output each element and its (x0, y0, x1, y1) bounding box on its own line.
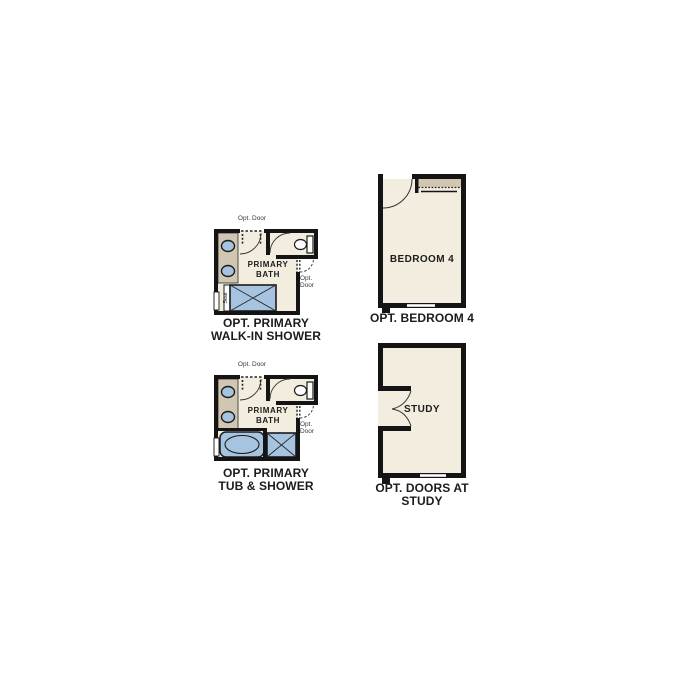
wall-niche (214, 438, 219, 456)
room-label-line2: BATH (256, 270, 280, 279)
bedroom-4-room-label: BEDROOM 4 (382, 254, 462, 265)
sink-basin (222, 266, 235, 277)
caption-bedroom-4: OPT. BEDROOM 4 (350, 312, 494, 325)
optional-door-swing-arc (300, 405, 314, 419)
study-room-label: STUDY (390, 404, 454, 415)
optional-door-swing-arc (300, 259, 314, 273)
opt-door-label-top: Opt. Door (214, 215, 290, 222)
plan-opt-primary-tub-shower: Opt. Door PRIMARY BATH Opt. Door OPT. PR… (214, 375, 318, 461)
opt-door-label-right: Opt. Door (300, 421, 322, 435)
toilet-bowl (295, 386, 307, 396)
caption-tub-shower: OPT. PRIMARY TUB & SHOWER (191, 467, 341, 492)
wall-opening (407, 304, 435, 307)
floor-plan-options-sheet: Seat (0, 0, 687, 687)
bedroom-4-floorplan-drawing (378, 174, 466, 314)
wall-niche (214, 292, 219, 310)
room-label-line1: PRIMARY (248, 260, 289, 269)
doorway-floor (378, 391, 383, 426)
caption-walk-in-shower: OPT. PRIMARY WALK-IN SHOWER (191, 317, 341, 342)
opt-door-label-right: Opt. Door (300, 275, 322, 289)
plan-opt-doors-at-study: STUDY OPT. DOORS AT STUDY (378, 343, 466, 485)
sink-basin (222, 412, 235, 423)
closet-shelf (415, 179, 461, 187)
closet-wall-stub (415, 179, 419, 193)
room-floor (383, 179, 461, 303)
seat-label: Seat (223, 292, 229, 304)
primary-bath-room-label: PRIMARY BATH (240, 260, 296, 279)
opt-door-label-top: Opt. Door (214, 361, 290, 368)
sink-basin (222, 241, 235, 252)
sink-basin (222, 387, 235, 398)
plan-opt-bedroom-4: BEDROOM 4 OPT. BEDROOM 4 (378, 174, 466, 314)
toilet-tank (307, 236, 313, 253)
caption-study: OPT. DOORS AT STUDY (350, 482, 494, 507)
room-label-line1: PRIMARY (248, 406, 289, 415)
room-label-line2: BATH (256, 416, 280, 425)
toilet-tank (307, 382, 313, 399)
toilet-bowl (295, 240, 307, 250)
primary-bath-room-label: PRIMARY BATH (240, 406, 296, 425)
plan-opt-primary-walk-in-shower: Seat (214, 229, 318, 315)
wall-opening (420, 474, 446, 477)
